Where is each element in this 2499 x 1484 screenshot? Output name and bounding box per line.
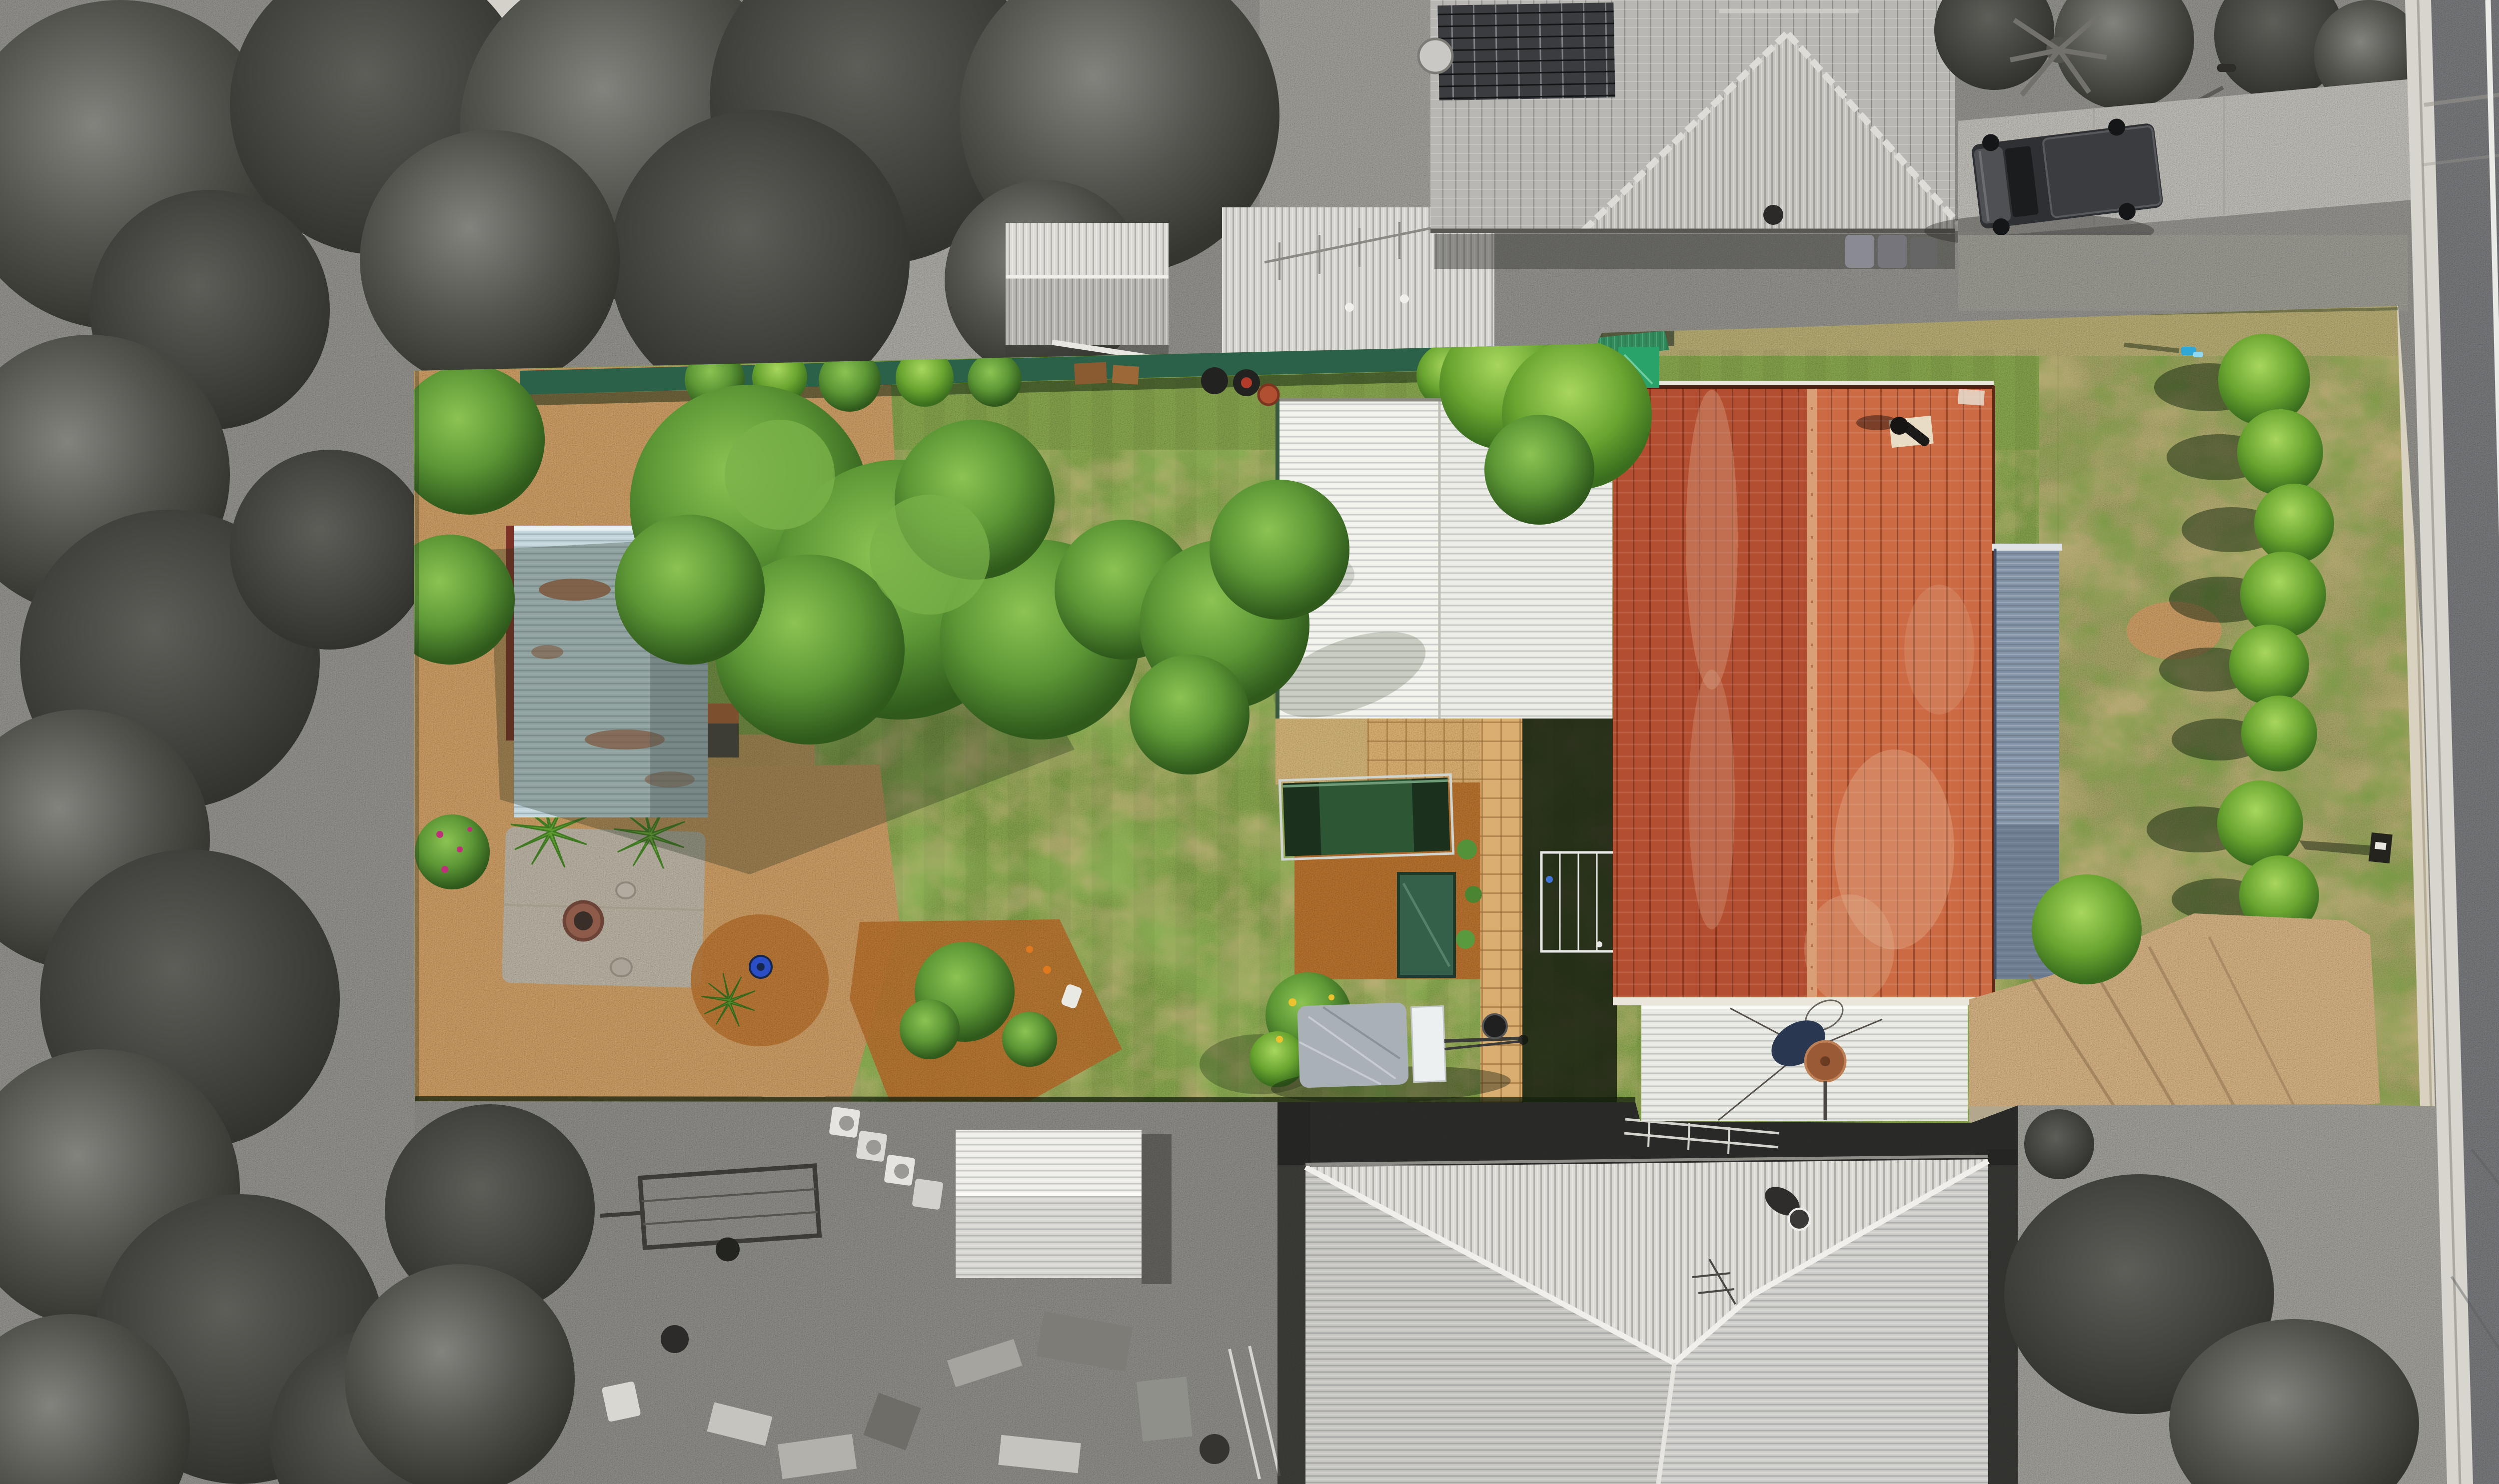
scene-svg: [0, 0, 2499, 1484]
sunflower: [1288, 998, 1296, 1006]
bougainvillea-flower: [467, 827, 472, 832]
boundary-fence-shadow-south: [415, 1099, 1635, 1100]
shed-shadow: [1142, 1134, 1172, 1284]
appliance: [912, 1178, 943, 1210]
ladder-rung: [1688, 1123, 1689, 1150]
terracotta-pot: [1258, 385, 1278, 405]
ridge-capping: [1807, 386, 1817, 1002]
bougainvillea-flower: [457, 846, 463, 852]
wheelie-bin: [1878, 235, 1907, 268]
tree-canopy: [1130, 655, 1249, 774]
roof-flue: [1789, 1209, 1810, 1230]
dry-patch: [1275, 719, 1367, 784]
gray-tree-canopy: [230, 450, 430, 650]
shade-tent-small: [1398, 873, 1454, 976]
garden-mulch-circle: [691, 914, 829, 1046]
bougainvillea: [415, 814, 490, 889]
pad-stone: [611, 958, 632, 976]
wheelie-bin: [1845, 235, 1874, 268]
property-lot: [385, 300, 2444, 1139]
row-tree: [2241, 696, 2317, 771]
row-tree: [2254, 484, 2334, 564]
gray-shrub: [2024, 1109, 2094, 1179]
top-right-neighbour: [1924, 0, 2424, 311]
sunflower: [1276, 1036, 1283, 1043]
house-shadow: [1522, 719, 1617, 1104]
pad-stone: [616, 882, 635, 898]
gray-lawn: [1958, 235, 2408, 311]
tile-wear-mottle: [1804, 894, 1894, 1004]
row-tree: [2217, 780, 2303, 866]
fire-pit-coals: [574, 911, 593, 930]
tree-canopy-highlight: [725, 420, 835, 530]
light-head: [2217, 64, 2236, 72]
veggie-plant: [1456, 930, 1475, 949]
bougainvillea-flower: [436, 831, 443, 838]
shed-corrugation: [956, 1130, 1142, 1278]
tree-canopy: [615, 515, 765, 665]
gray-ground-patch: [1259, 0, 1439, 210]
gutter-glint: [1613, 381, 1994, 385]
fern-cluster: [900, 999, 960, 1059]
veggie-plant: [1457, 839, 1477, 859]
dish-feed: [1820, 1056, 1830, 1066]
junk-item: [1137, 1377, 1193, 1442]
bougainvillea-flower: [441, 866, 448, 873]
tile-wear-streak: [1686, 390, 1738, 690]
bottom-house: [1277, 1099, 2018, 1484]
veggie-plant: [1465, 886, 1482, 903]
tree-canopy: [1484, 415, 1594, 525]
gray-tree-canopy: [345, 1264, 575, 1484]
paver-path-grid: [1480, 719, 1522, 1104]
appliance-door: [866, 1140, 881, 1155]
blue-toy-part: [2193, 352, 2203, 357]
shade-tent-large: [1279, 774, 1453, 859]
white-gable-shed: [956, 1130, 1172, 1284]
tile-wear-mottle: [1904, 585, 1974, 715]
junk-tyre: [661, 1325, 689, 1353]
tyre-red-rim: [1241, 377, 1252, 388]
trailer-wheel: [1482, 1014, 1507, 1039]
sunflower: [1328, 994, 1334, 1000]
peg-blue: [1546, 876, 1553, 883]
white-patch-top-right: [1958, 389, 1985, 406]
tree-canopy: [2032, 874, 2142, 984]
gray-tree-canopy: [360, 130, 620, 390]
tree-canopy: [1210, 480, 1349, 620]
roof-vent: [1345, 303, 1354, 312]
red-tile-roof: [1613, 381, 1994, 1005]
ladder-rung: [1648, 1119, 1649, 1147]
flue-cap: [1890, 417, 1908, 435]
blue-bucket-center: [757, 963, 765, 971]
gable-shed-corrugation: [1006, 223, 1169, 345]
mailbox-slot: [2375, 842, 2386, 850]
satellite-dish-gray: [1418, 39, 1452, 73]
aerial-photo: [0, 0, 2499, 1484]
junk-yard: [345, 1099, 1279, 1484]
row-tree: [2218, 334, 2310, 426]
top-house: [1418, 0, 1965, 269]
pergola-top-beam: [1992, 544, 2062, 551]
gravel-yard: [2004, 1104, 2458, 1484]
flower-dot-orange: [1043, 966, 1051, 974]
wheelie-bin: [1910, 237, 1937, 268]
tent-mesh-end: [1283, 782, 1321, 856]
eave-shadow: [1434, 234, 1955, 269]
junk-tyre: [1200, 1434, 1230, 1464]
flower-dot-orange: [1026, 946, 1033, 953]
tile-wear-streak: [1689, 670, 1735, 929]
appliance-door: [839, 1116, 854, 1131]
appliance-door: [894, 1164, 909, 1179]
tyre: [1201, 367, 1228, 394]
trailer-side-board: [1411, 1006, 1445, 1082]
carport-roof: [1641, 994, 1968, 1121]
roof-vent: [1400, 294, 1409, 303]
row-tree: [2237, 409, 2323, 495]
wooden-crate: [1112, 365, 1139, 385]
row-tree: [2229, 625, 2309, 705]
truck-tray-cover: [2043, 126, 2162, 218]
eave-capping-bottom: [1613, 997, 1994, 1005]
tent-mesh-end: [1411, 777, 1450, 851]
peg-white: [1596, 941, 1602, 947]
row-tree: [2240, 552, 2326, 638]
garden-shrub: [1002, 1012, 1057, 1067]
ladder-rung: [1728, 1127, 1729, 1154]
solar-panel-grid: [1437, 2, 1615, 100]
gray-sheds: [1006, 207, 1494, 370]
tree-canopy-highlight: [870, 495, 990, 615]
bougainvillea-foliage: [415, 814, 490, 889]
hedge-bush: [968, 353, 1022, 407]
roof-flue: [1763, 205, 1783, 225]
wooden-crate: [1074, 362, 1107, 384]
